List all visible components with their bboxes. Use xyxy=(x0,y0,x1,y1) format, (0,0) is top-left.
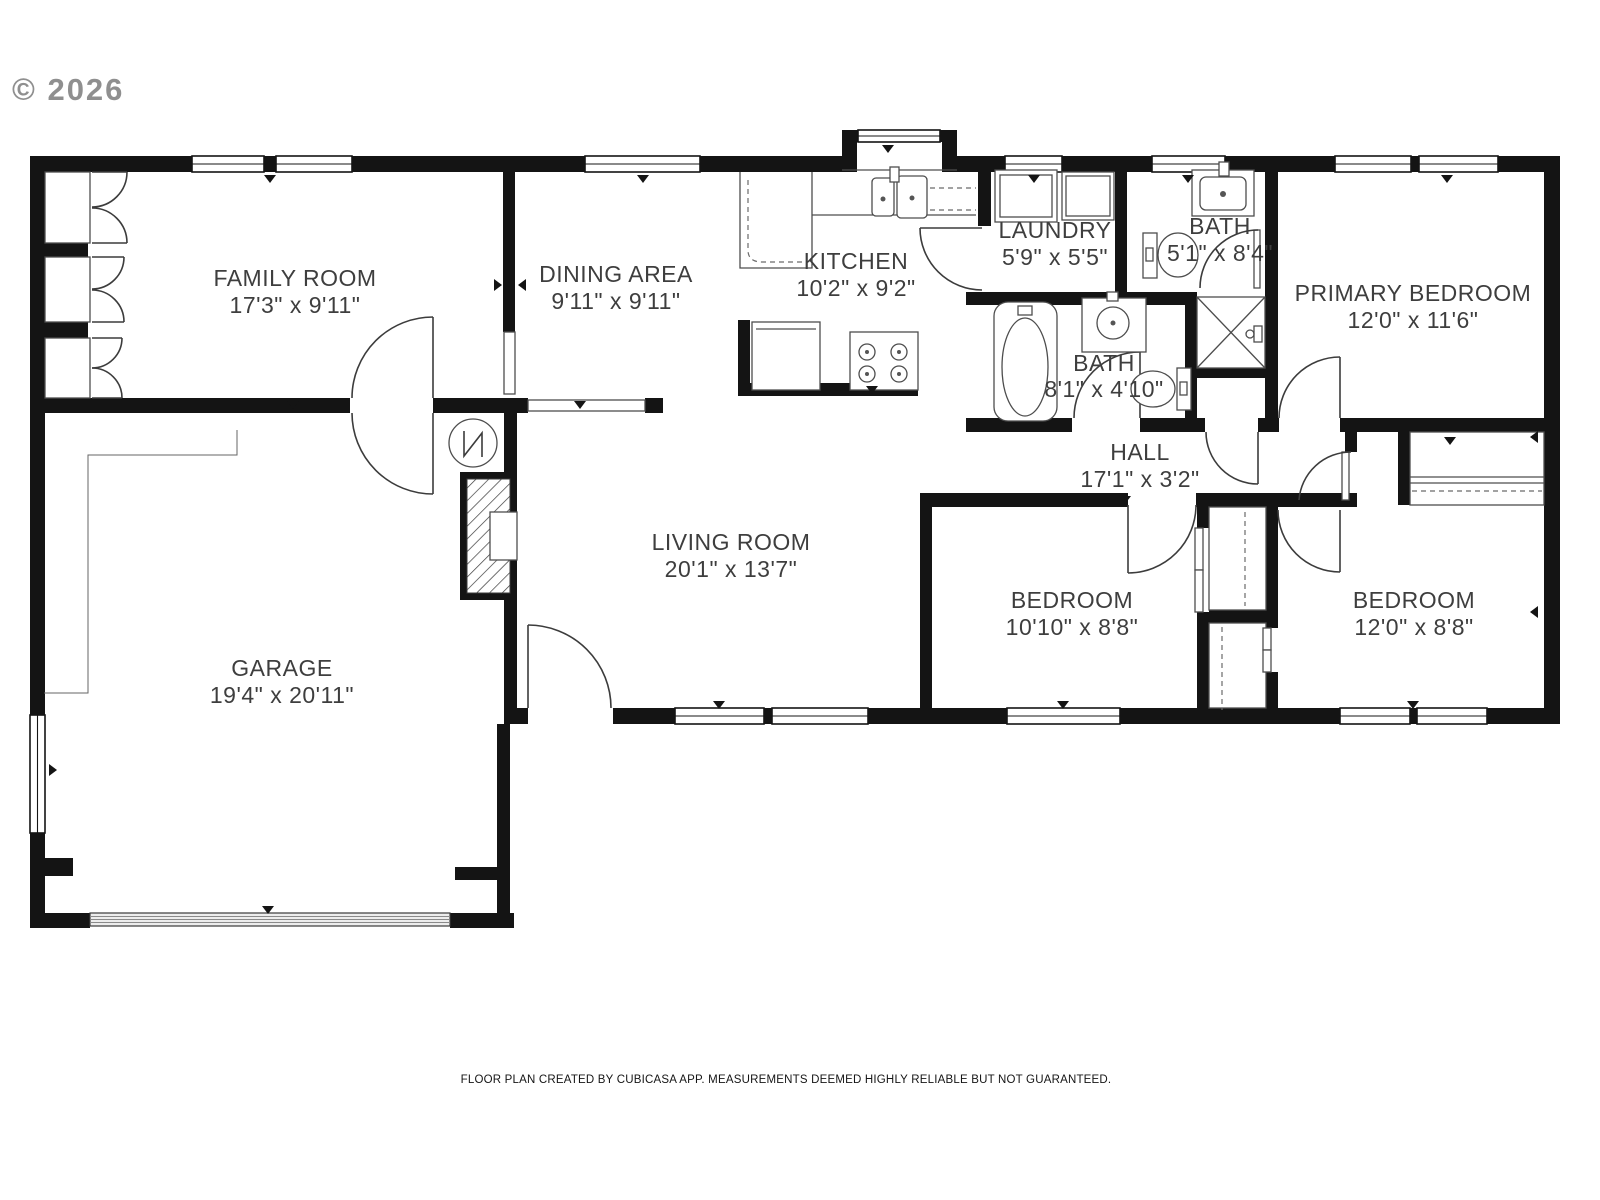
garage-door xyxy=(90,913,450,926)
copyright-watermark: © 2026 xyxy=(12,72,124,107)
room-label-bath-middle: BATH8'1" x 4'10" xyxy=(1044,350,1163,402)
svg-text:DINING AREA: DINING AREA xyxy=(539,261,693,287)
svg-text:17'1" x 3'2": 17'1" x 3'2" xyxy=(1080,466,1199,492)
window xyxy=(858,130,940,142)
svg-text:BATH: BATH xyxy=(1189,213,1251,239)
door-swing xyxy=(1206,432,1258,484)
svg-text:GARAGE: GARAGE xyxy=(231,655,332,681)
window xyxy=(585,156,700,172)
svg-text:17'3" x 9'11": 17'3" x 9'11" xyxy=(230,292,361,318)
window xyxy=(1419,156,1498,172)
window xyxy=(1007,708,1120,724)
room-label-bedroom-right: BEDROOM12'0" x 8'8" xyxy=(1353,587,1475,640)
svg-text:5'9" x 5'5": 5'9" x 5'5" xyxy=(1002,244,1108,270)
room-label-dining-area: DINING AREA9'11" x 9'11" xyxy=(539,261,693,314)
family-room-closets xyxy=(45,172,127,398)
door-swing xyxy=(352,413,433,494)
bathroom-sink-icon xyxy=(1192,162,1254,216)
garage-interior-outline xyxy=(44,430,237,693)
room-label-garage: GARAGE19'4" x 20'11" xyxy=(210,655,354,708)
door-swing xyxy=(1128,505,1196,573)
door-swing xyxy=(1279,357,1340,418)
bathroom-sink-icon xyxy=(1082,292,1146,352)
room-label-family-room: FAMILY ROOM17'3" x 9'11" xyxy=(213,265,376,318)
door-swing xyxy=(920,228,982,290)
window xyxy=(30,715,45,833)
room-label-living-room: LIVING ROOM20'1" x 13'7" xyxy=(652,529,811,582)
svg-text:LIVING ROOM: LIVING ROOM xyxy=(652,529,811,555)
svg-text:FAMILY ROOM: FAMILY ROOM xyxy=(213,265,376,291)
room-label-bath-upper: BATH5'1" x 8'4" xyxy=(1167,213,1273,266)
svg-text:19'4" x 20'11": 19'4" x 20'11" xyxy=(210,682,354,708)
room-label-laundry: LAUNDRY5'9" x 5'5" xyxy=(999,217,1112,270)
room-label-kitchen: KITCHEN10'2" x 9'2" xyxy=(796,248,915,301)
washer-icon xyxy=(995,170,1057,222)
laundry-fixtures xyxy=(995,170,1114,222)
window xyxy=(675,708,764,724)
window xyxy=(1340,708,1410,724)
door-swing xyxy=(1299,452,1351,500)
window xyxy=(1417,708,1487,724)
svg-text:20'1" x 13'7": 20'1" x 13'7" xyxy=(665,556,798,582)
room-label-bedroom-middle: BEDROOM10'10" x 8'8" xyxy=(1006,587,1139,640)
door-swing xyxy=(528,625,611,708)
svg-text:BATH: BATH xyxy=(1073,350,1135,376)
window xyxy=(276,156,352,172)
bathtub-icon xyxy=(994,302,1057,421)
svg-text:10'10" x 8'8": 10'10" x 8'8" xyxy=(1006,614,1139,640)
door-swing xyxy=(1278,510,1340,572)
svg-text:8'1" x 4'10": 8'1" x 4'10" xyxy=(1044,376,1163,402)
window xyxy=(1335,156,1411,172)
refrigerator-icon xyxy=(752,322,820,390)
fireplace-icon xyxy=(460,472,517,600)
room-label-primary-bedroom: PRIMARY BEDROOM12'0" x 11'6" xyxy=(1295,280,1532,333)
svg-text:12'0" x 11'6": 12'0" x 11'6" xyxy=(1348,307,1479,333)
room-labels: FAMILY ROOM17'3" x 9'11" DINING AREA9'11… xyxy=(210,213,1531,708)
svg-text:5'1" x 8'4": 5'1" x 8'4" xyxy=(1167,240,1273,266)
room-label-hall: HALL17'1" x 3'2" xyxy=(1080,439,1199,492)
svg-text:PRIMARY BEDROOM: PRIMARY BEDROOM xyxy=(1295,280,1532,306)
svg-text:BEDROOM: BEDROOM xyxy=(1011,587,1133,613)
primary-closet xyxy=(1410,432,1544,505)
svg-text:12'0" x 8'8": 12'0" x 8'8" xyxy=(1354,614,1473,640)
shower-icon xyxy=(1197,297,1265,368)
svg-text:10'2" x 9'2": 10'2" x 9'2" xyxy=(796,275,915,301)
window xyxy=(192,156,264,172)
svg-text:9'11" x 9'11": 9'11" x 9'11" xyxy=(551,288,680,314)
kitchen-sink-icon xyxy=(872,167,927,218)
stove-icon xyxy=(850,332,918,390)
svg-text:KITCHEN: KITCHEN xyxy=(804,248,908,274)
door-swing xyxy=(352,317,433,398)
floor-plan-drawing: FAMILY ROOM17'3" x 9'11" DINING AREA9'11… xyxy=(0,0,1600,1200)
floor-plan-page: FAMILY ROOM17'3" x 9'11" DINING AREA9'11… xyxy=(0,0,1600,1200)
svg-text:HALL: HALL xyxy=(1110,439,1170,465)
water-heater-icon xyxy=(449,419,497,467)
footer-disclaimer: FLOOR PLAN CREATED BY CUBICASA APP. MEAS… xyxy=(461,1074,1112,1086)
svg-text:BEDROOM: BEDROOM xyxy=(1353,587,1475,613)
window xyxy=(772,708,868,724)
dryer-icon xyxy=(1062,172,1114,220)
svg-text:LAUNDRY: LAUNDRY xyxy=(999,217,1112,243)
